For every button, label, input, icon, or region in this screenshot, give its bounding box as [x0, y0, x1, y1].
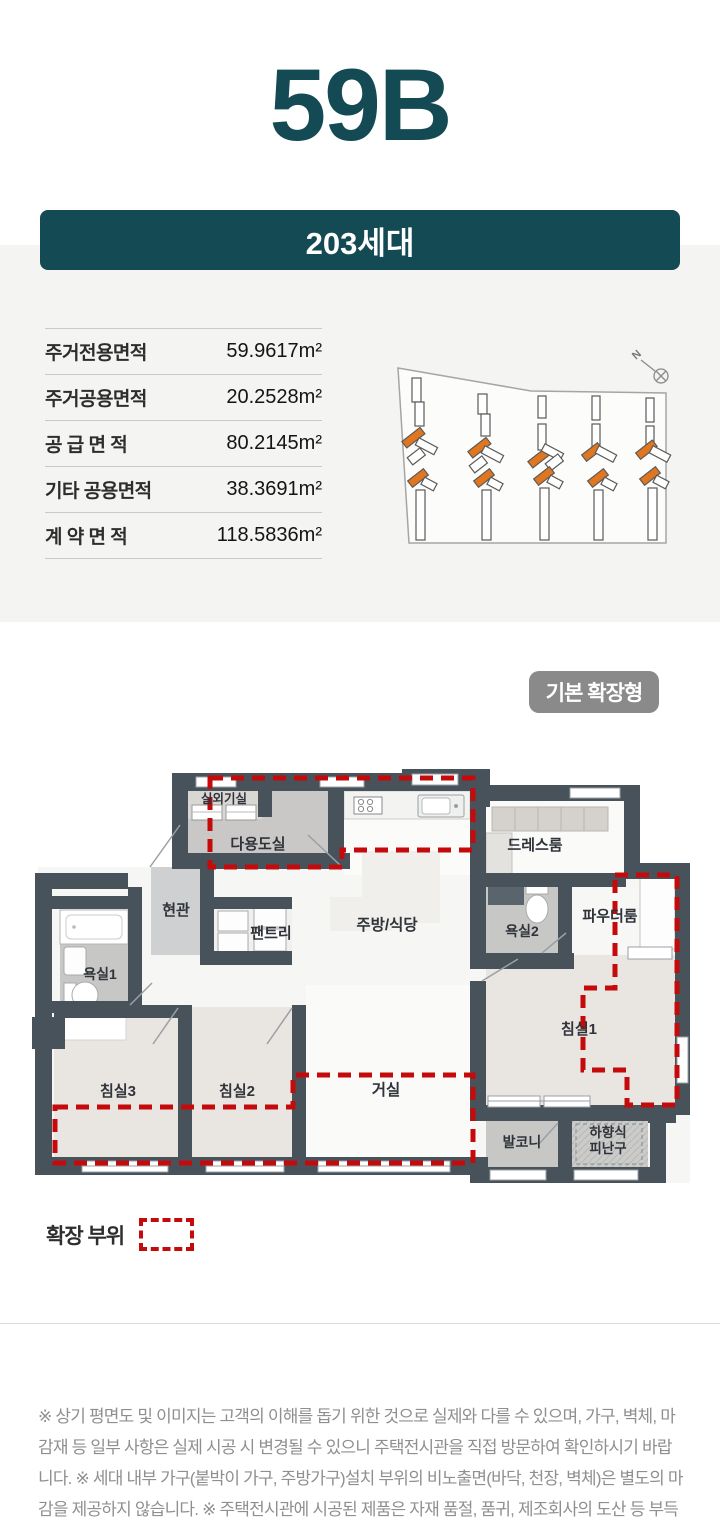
powder-cabinet — [640, 877, 675, 949]
room-label-outdoor-unit: 실외기실 — [201, 791, 247, 806]
households-banner-label: 203세대 — [306, 218, 415, 263]
bathtub-icon — [60, 910, 128, 944]
room-label-bedroom3: 침실3 — [100, 1083, 136, 1100]
area-row-value: 38.3691m² — [226, 478, 322, 501]
room-label-bedroom2: 침실2 — [219, 1083, 255, 1100]
extension-dashed-box-icon — [139, 1218, 194, 1251]
room-label-bedroom1: 침실1 — [561, 1021, 597, 1038]
room-label-balcony: 발코니 — [503, 1134, 542, 1150]
area-row-value: 80.2145m² — [226, 432, 322, 455]
room-label-bathroom2: 욕실2 — [505, 923, 539, 939]
page-title: 59B — [0, 52, 720, 159]
stove-icon — [354, 797, 382, 814]
households-banner: 203세대 — [40, 210, 680, 270]
disclaimer-text: ※ 상기 평면도 및 이미지는 고객의 이해를 돕기 위한 것으로 실제와 다를… — [38, 1401, 683, 1522]
area-row-value: 59.9617m² — [226, 340, 322, 363]
area-row-value: 20.2528m² — [226, 386, 322, 409]
room-label-dress: 드레스룸 — [507, 837, 562, 854]
area-row-label: 공 급 면 적 — [45, 430, 127, 457]
room-living-floor — [306, 985, 472, 1157]
area-row-label: 주거공용면적 — [45, 384, 147, 411]
toilet-icon — [526, 885, 548, 923]
area-row-label: 주거전용면적 — [45, 338, 147, 365]
plan-type-badge-label: 기본 확장형 — [546, 677, 642, 707]
room-label-powder: 파우더룸 — [582, 908, 637, 925]
area-row-label: 기타 공용면적 — [45, 476, 152, 503]
table-row: 공 급 면 적 80.2145m² — [45, 420, 322, 466]
area-row-value: 118.5836m² — [217, 524, 322, 547]
room-label-pantry: 팬트리 — [250, 925, 291, 942]
area-table: 주거전용면적 59.9617m² 주거공용면적 20.2528m² 공 급 면 … — [45, 328, 322, 559]
sink-icon — [418, 795, 464, 817]
floorplan-page: 59B 203세대 주거전용면적 59.9617m² 주거공용면적 20.252… — [0, 0, 720, 1522]
bathroom2-vanity — [488, 885, 524, 905]
site-plan: N — [378, 338, 683, 553]
site-boundary — [398, 368, 666, 543]
area-row-label: 계 약 면 적 — [45, 522, 127, 549]
table-row: 계 약 면 적 118.5836m² — [45, 512, 322, 559]
room-label-kitchen: 주방/식당 — [356, 916, 418, 934]
room-label-utility: 다용도실 — [230, 836, 285, 853]
table-row: 주거전용면적 59.9617m² — [45, 328, 322, 374]
legend-label: 확장 부위 — [46, 1220, 124, 1250]
footer-divider — [0, 1323, 720, 1324]
room-label-escape-hatch: 하향식 — [589, 1124, 626, 1140]
room-label-entrance: 현관 — [162, 902, 190, 919]
north-arrow-icon: N — [630, 348, 668, 383]
table-row: 주거공용면적 20.2528m² — [45, 374, 322, 420]
extension-legend: 확장 부위 — [46, 1218, 194, 1251]
wardrobe — [492, 807, 608, 831]
plan-type-badge: 기본 확장형 — [529, 671, 659, 713]
room-label-bathroom1: 욕실1 — [83, 966, 117, 982]
table-row: 기타 공용면적 38.3691m² — [45, 466, 322, 512]
room-label-living: 거실 — [372, 1081, 401, 1099]
room-label-escape-hatch: 피난구 — [589, 1140, 626, 1156]
floor-plan: 실외기실 다용도실 드레스룸 현관 팬트리 주방/식당 욕실2 파우더룸 욕실1… — [30, 755, 690, 1185]
